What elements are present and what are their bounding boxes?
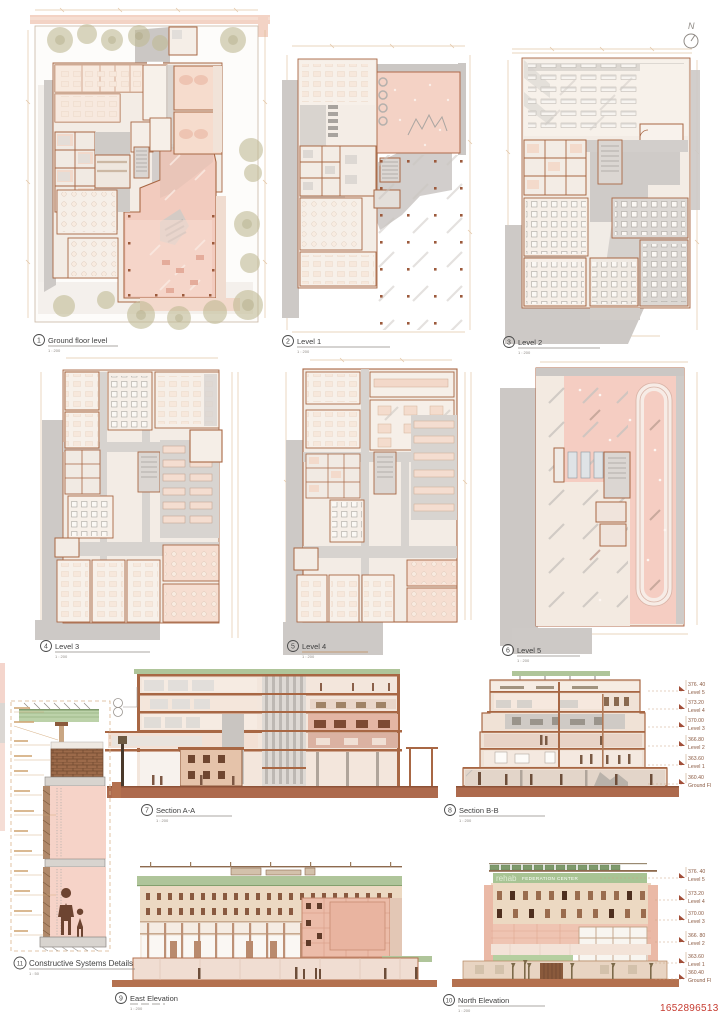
svg-text:Level 2: Level 2: [688, 941, 705, 947]
svg-text:3: 3: [507, 340, 511, 347]
svg-text:360.40: 360.40: [688, 970, 704, 976]
svg-text:Level 1: Level 1: [688, 962, 705, 968]
svg-text:363.60: 363.60: [688, 756, 704, 762]
svg-text:1 : 200: 1 : 200: [517, 658, 530, 663]
svg-text:5: 5: [291, 644, 295, 651]
svg-text:370.00: 370.00: [688, 911, 704, 917]
svg-text:Constructive Systems Details: Constructive Systems Details: [29, 959, 133, 968]
svg-text:Level 2: Level 2: [518, 338, 542, 347]
svg-text:Level 3: Level 3: [688, 919, 705, 925]
svg-text:376. 40: 376. 40: [688, 869, 705, 875]
svg-text:Level 5: Level 5: [688, 877, 705, 883]
svg-text:1652896513: 1652896513: [660, 1003, 719, 1014]
svg-text:366.80: 366.80: [688, 737, 704, 743]
svg-text:Level 4: Level 4: [688, 899, 705, 905]
svg-text:Level 5: Level 5: [688, 690, 705, 696]
svg-text:4: 4: [44, 644, 48, 651]
svg-text:East Elevation: East Elevation: [130, 994, 178, 1003]
svg-text:Level 1: Level 1: [297, 337, 321, 346]
svg-text:370.00: 370.00: [688, 718, 704, 724]
svg-text:7: 7: [145, 808, 149, 815]
svg-text:363.60: 363.60: [688, 954, 704, 960]
svg-text:Level 5: Level 5: [517, 646, 541, 655]
svg-text:FEDERATION CENTER: FEDERATION CENTER: [522, 876, 579, 881]
svg-text:North Elevation: North Elevation: [458, 996, 509, 1005]
svg-text:rehab: rehab: [496, 874, 517, 883]
svg-text:Level 4: Level 4: [688, 708, 705, 714]
svg-text:1 : 200: 1 : 200: [518, 350, 531, 355]
svg-text:1 : 200: 1 : 200: [458, 1008, 471, 1013]
svg-text:1 : 200: 1 : 200: [130, 1006, 143, 1011]
svg-text:1 : 200: 1 : 200: [302, 654, 315, 659]
svg-text:Ground floor level: Ground floor level: [48, 336, 108, 345]
svg-text:10: 10: [446, 999, 453, 1005]
svg-text:Ground Fl: Ground Fl: [688, 978, 711, 984]
svg-text:1 : 200: 1 : 200: [55, 654, 68, 659]
svg-text:1 : 200: 1 : 200: [156, 818, 169, 823]
svg-text:Level 3: Level 3: [55, 642, 79, 651]
svg-text:8: 8: [448, 808, 452, 815]
svg-text:Level 4: Level 4: [302, 642, 326, 651]
svg-text:373.20: 373.20: [688, 700, 704, 706]
svg-text:2: 2: [286, 339, 290, 346]
svg-text:Level 2: Level 2: [688, 745, 705, 751]
svg-text:1 : 200: 1 : 200: [48, 348, 61, 353]
svg-text:Section B-B: Section B-B: [459, 806, 499, 815]
svg-text:Level 3: Level 3: [688, 726, 705, 732]
svg-text:Ground Fl: Ground Fl: [688, 783, 711, 789]
svg-text:373.20: 373.20: [688, 891, 704, 897]
svg-text:N: N: [688, 21, 695, 31]
svg-text:1 : 200: 1 : 200: [459, 818, 472, 823]
svg-text:Section A-A: Section A-A: [156, 806, 195, 815]
svg-text:Level 1: Level 1: [688, 764, 705, 770]
svg-text:6: 6: [506, 648, 510, 655]
svg-text:360.40: 360.40: [688, 775, 704, 781]
svg-text:11: 11: [17, 962, 24, 968]
svg-text:1 : 200: 1 : 200: [297, 349, 310, 354]
svg-text:376. 40: 376. 40: [688, 682, 705, 688]
svg-text:1: 1: [37, 338, 41, 345]
svg-text:366. 80: 366. 80: [688, 933, 705, 939]
svg-text:9: 9: [119, 996, 123, 1003]
svg-text:1 : 50: 1 : 50: [29, 971, 40, 976]
